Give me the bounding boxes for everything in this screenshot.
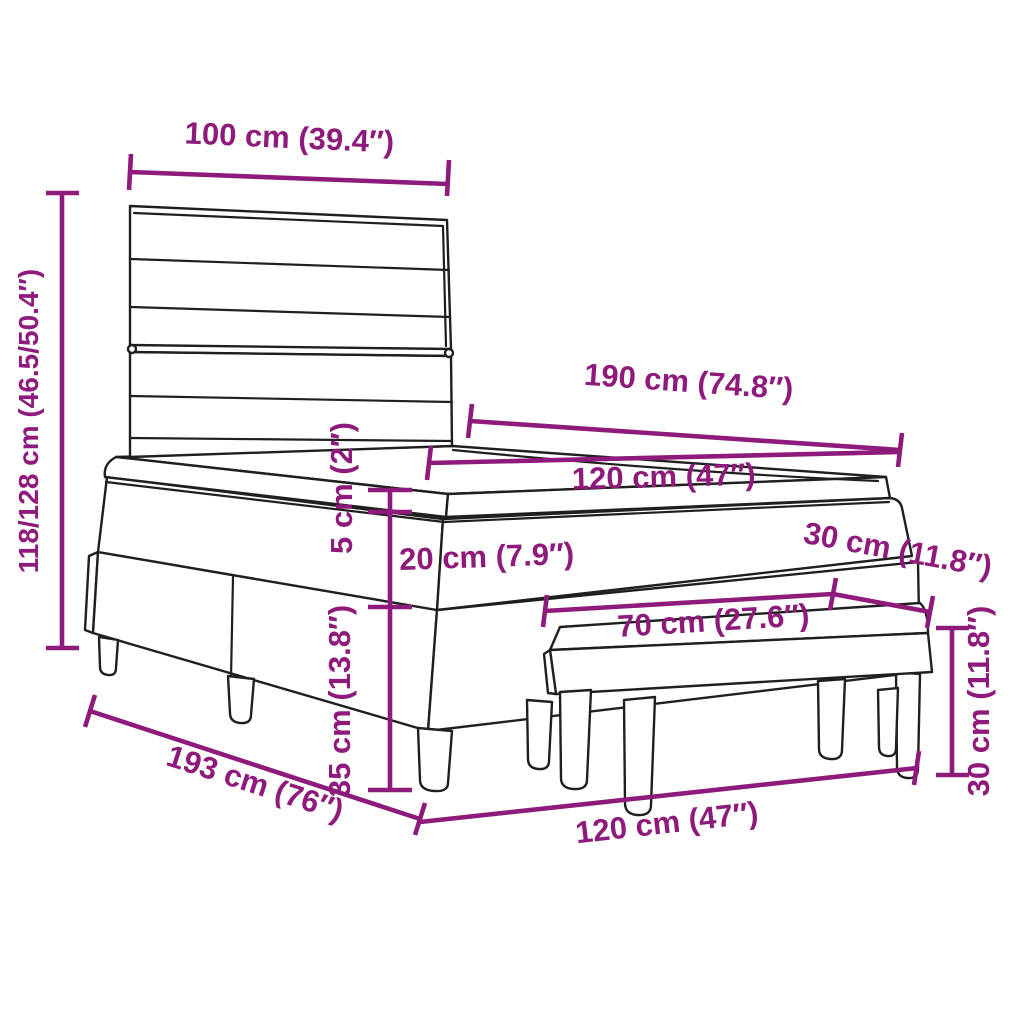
- dim-headboard-width-line: [129, 154, 449, 196]
- total-height-label: 118/128 cm (46.5/50.4″): [13, 269, 44, 574]
- diagram-canvas: 100 cm (39.4″) 118/128 cm (46.5/50.4″) 1…: [0, 0, 1024, 1024]
- mattress-height-label: 20 cm (7.9″): [399, 536, 575, 577]
- bench-leg-back-right: [878, 688, 898, 756]
- bed-drawing: [85, 206, 920, 791]
- headboard-upper-panel: [130, 206, 451, 349]
- bench-leg-front-right: [818, 679, 845, 759]
- bench-height-label: 30 cm (11.8″): [961, 606, 996, 797]
- headboard-width-label: 100 cm (39.4″): [184, 115, 395, 159]
- bench-leg-front-left: [560, 690, 591, 789]
- bed-width-top-label: 120 cm (47″): [571, 457, 756, 497]
- headboard-joint-cap-right: [445, 349, 453, 357]
- headboard-joint-cap-left: [128, 345, 136, 353]
- base-height-label: 35 cm (13.8″): [322, 605, 357, 797]
- bed-leg-head: [99, 637, 118, 675]
- bed-dimension-diagram: 100 cm (39.4″) 118/128 cm (46.5/50.4″) 1…: [0, 0, 1024, 1024]
- bed-leg-side-middle: [228, 676, 254, 723]
- bed-leg-foot-middle: [527, 700, 552, 769]
- topper-height-label: 5 cm (2″): [324, 422, 359, 554]
- bed-leg-foot-left: [418, 728, 452, 791]
- dim-total-height-line: [46, 193, 79, 648]
- bed-length-label: 190 cm (74.8″): [583, 357, 795, 407]
- floor-length-label: 193 cm (76″): [162, 738, 348, 828]
